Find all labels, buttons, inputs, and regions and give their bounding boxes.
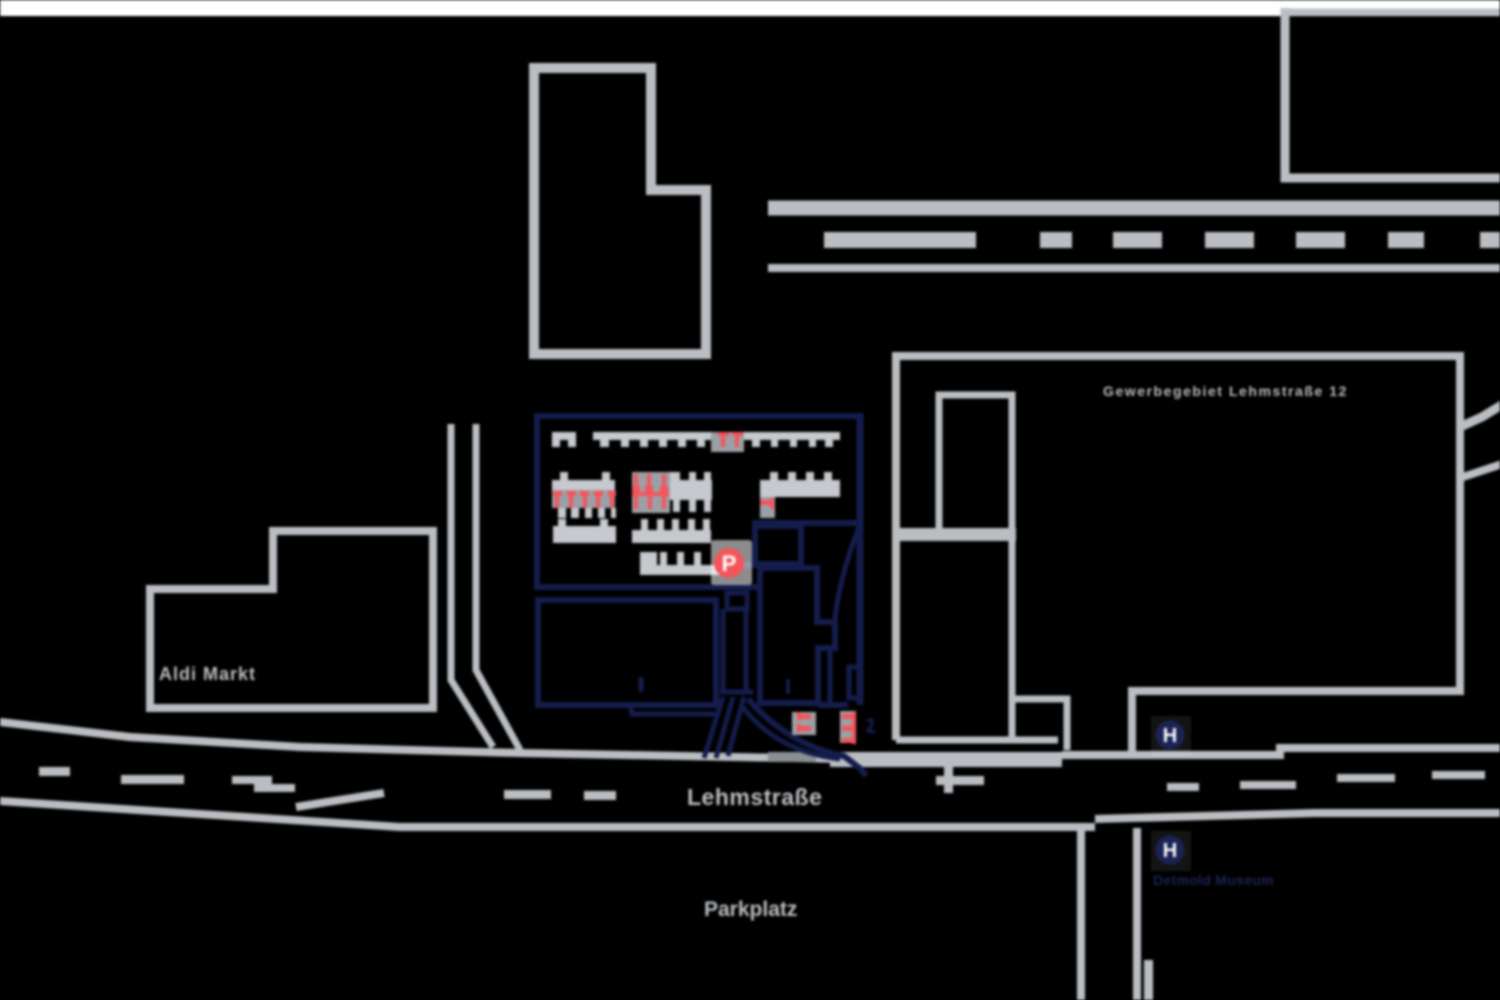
- svg-text:H: H: [1163, 840, 1177, 862]
- svg-text:Detmold Museum: Detmold Museum: [1153, 872, 1274, 888]
- svg-text:Parkplatz: Parkplatz: [704, 898, 797, 921]
- svg-text:Aldi Markt: Aldi Markt: [159, 664, 256, 684]
- svg-text:H: H: [1163, 725, 1177, 747]
- svg-text:P: P: [722, 551, 737, 576]
- svg-text:Lehmstraße: Lehmstraße: [687, 784, 822, 810]
- svg-text:Gewerbegebiet Lehmstraße 12: Gewerbegebiet Lehmstraße 12: [1103, 383, 1348, 399]
